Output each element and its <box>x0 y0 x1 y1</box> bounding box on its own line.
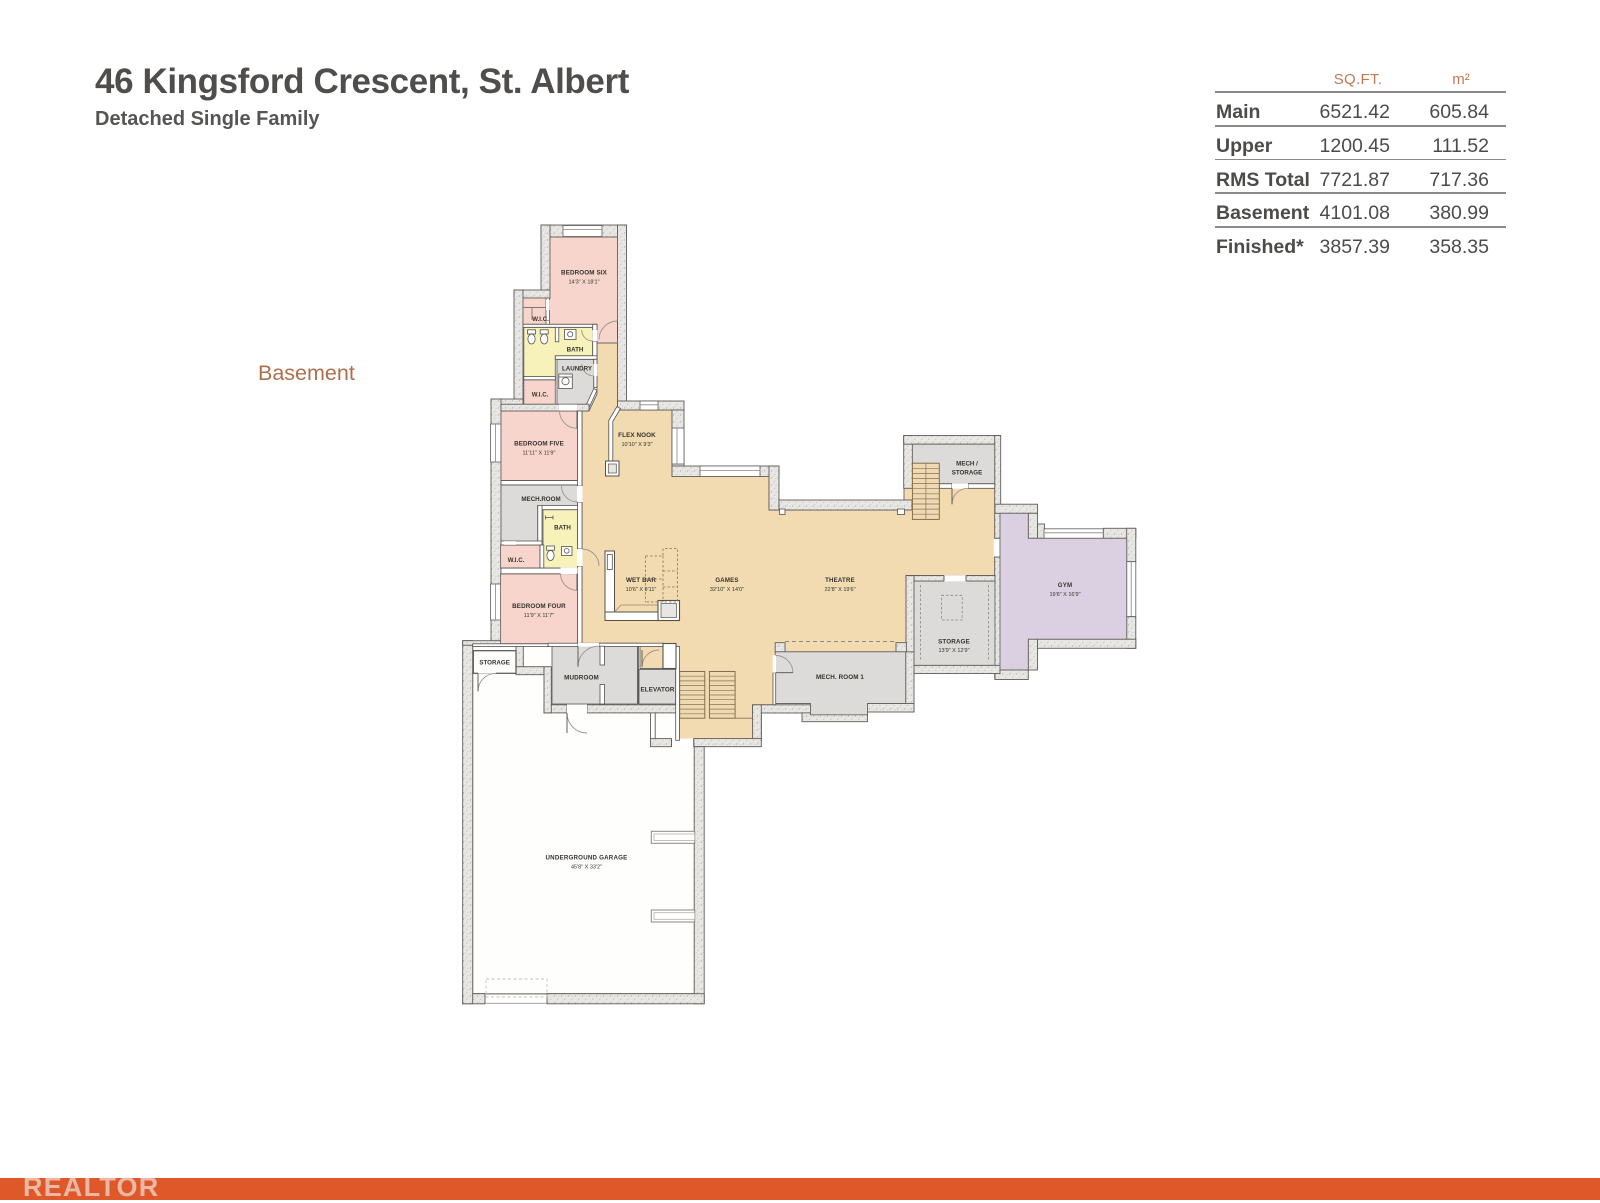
svg-text:STORAGE: STORAGE <box>952 470 982 477</box>
svg-text:BEDROOM FOUR: BEDROOM FOUR <box>512 603 566 610</box>
svg-text:19'6" X 16'9": 19'6" X 16'9" <box>1049 592 1080 598</box>
svg-text:STORAGE: STORAGE <box>479 660 509 667</box>
svg-text:GAMES: GAMES <box>715 577 738 584</box>
svg-text:W.I.C.: W.I.C. <box>532 392 549 399</box>
svg-text:WET BAR: WET BAR <box>626 577 656 584</box>
svg-text:BEDROOM FIVE: BEDROOM FIVE <box>514 441 564 448</box>
svg-text:UNDERGROUND GARAGE: UNDERGROUND GARAGE <box>546 855 628 862</box>
svg-text:BATH: BATH <box>554 525 571 532</box>
svg-text:LAUNDRY: LAUNDRY <box>562 366 593 373</box>
svg-text:MECH. ROOM 1: MECH. ROOM 1 <box>816 674 864 681</box>
svg-text:32'10" X 14'0": 32'10" X 14'0" <box>710 587 744 593</box>
svg-text:FLEX NOOK: FLEX NOOK <box>618 432 656 439</box>
svg-text:W.I.C.: W.I.C. <box>532 316 549 323</box>
svg-text:STORAGE: STORAGE <box>938 639 970 646</box>
svg-text:BATH: BATH <box>567 347 584 354</box>
svg-text:22'8" X 19'6": 22'8" X 19'6" <box>824 587 855 593</box>
svg-text:10'10" X 9'3": 10'10" X 9'3" <box>621 442 652 448</box>
svg-text:BEDROOM SIX: BEDROOM SIX <box>561 270 608 277</box>
svg-text:MECH.ROOM: MECH.ROOM <box>521 496 560 503</box>
svg-text:14'3" X 18'1": 14'3" X 18'1" <box>568 280 599 286</box>
svg-text:W.I.C.: W.I.C. <box>508 557 525 564</box>
svg-text:45'8" X 33'2": 45'8" X 33'2" <box>571 865 602 871</box>
svg-text:MUDROOM: MUDROOM <box>564 675 599 682</box>
svg-text:MECH /: MECH / <box>956 461 978 468</box>
svg-text:13'9" X 12'9": 13'9" X 12'9" <box>938 648 969 654</box>
svg-text:GYM: GYM <box>1058 582 1072 589</box>
svg-text:ELEVATOR: ELEVATOR <box>640 687 674 694</box>
svg-text:10'6" X 9'11": 10'6" X 9'11" <box>626 587 657 593</box>
svg-text:THEATRE: THEATRE <box>825 577 855 584</box>
svg-text:11'9" X 11'7": 11'9" X 11'7" <box>524 613 554 619</box>
svg-text:11'11" X 11'9": 11'11" X 11'9" <box>523 451 556 457</box>
